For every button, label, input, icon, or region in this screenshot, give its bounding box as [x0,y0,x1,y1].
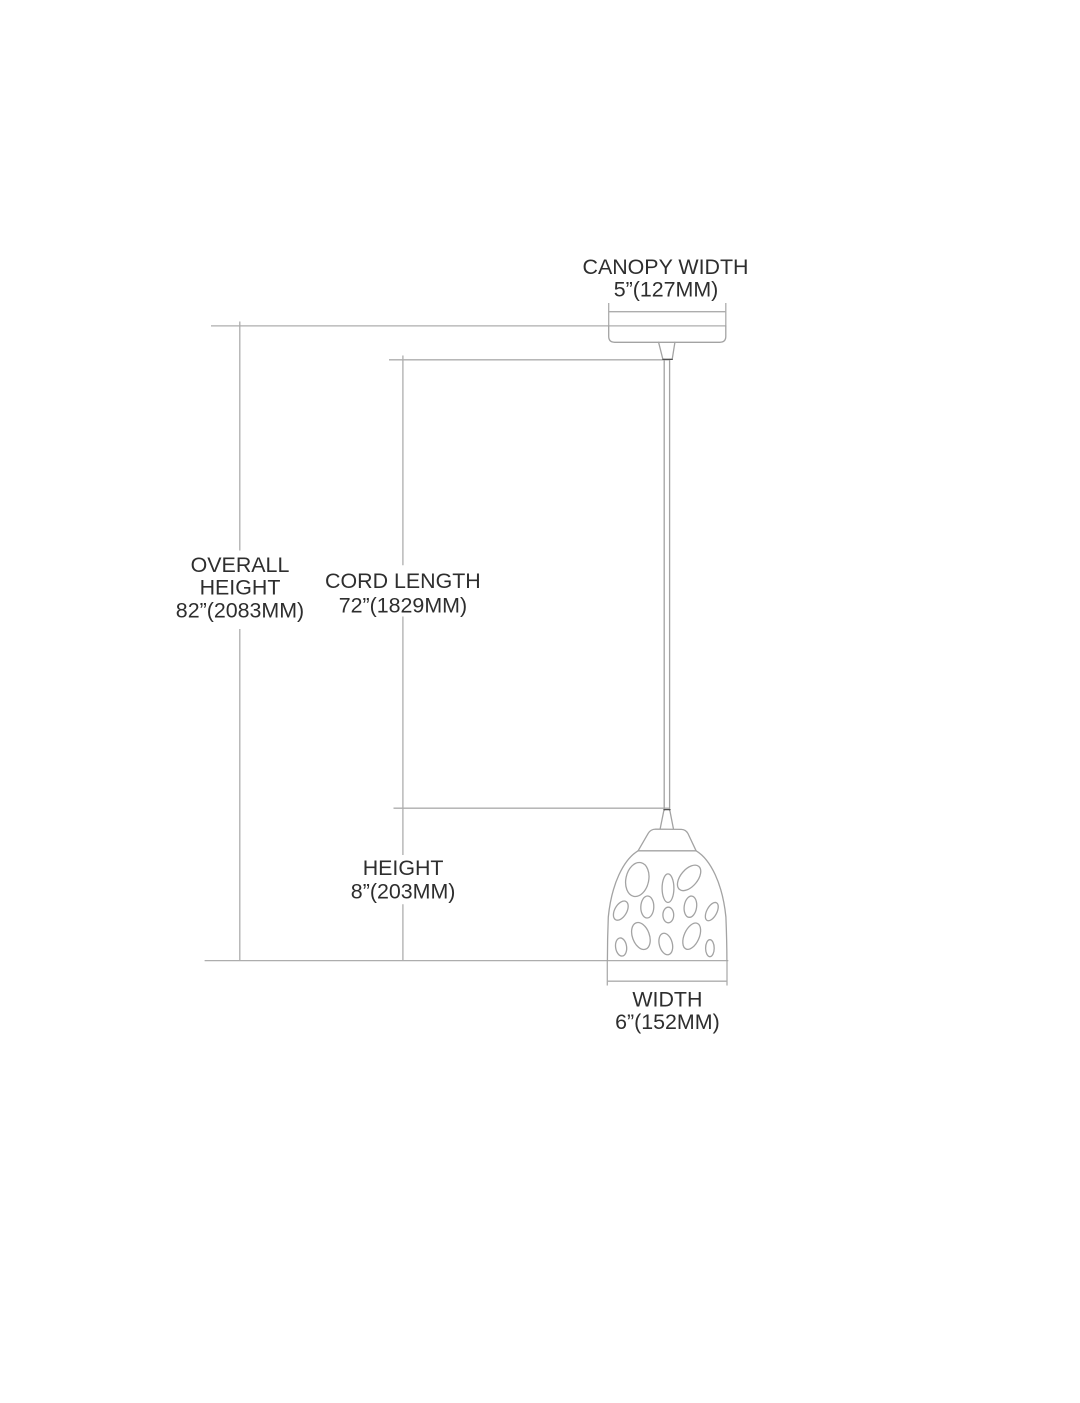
svg-text:8”(203MM): 8”(203MM) [351,880,456,904]
svg-text:82”(2083MM): 82”(2083MM) [176,598,304,622]
svg-text:HEIGHT: HEIGHT [363,856,444,880]
svg-text:CANOPY WIDTH: CANOPY WIDTH [583,255,749,279]
svg-text:72”(1829MM): 72”(1829MM) [339,593,467,617]
svg-text:HEIGHT: HEIGHT [200,575,281,599]
svg-text:6”(152MM): 6”(152MM) [615,1010,720,1034]
svg-text:WIDTH: WIDTH [632,988,702,1012]
svg-text:CORD LENGTH: CORD LENGTH [325,569,481,593]
svg-text:5”(127MM): 5”(127MM) [614,278,719,302]
svg-text:OVERALL: OVERALL [191,553,290,577]
